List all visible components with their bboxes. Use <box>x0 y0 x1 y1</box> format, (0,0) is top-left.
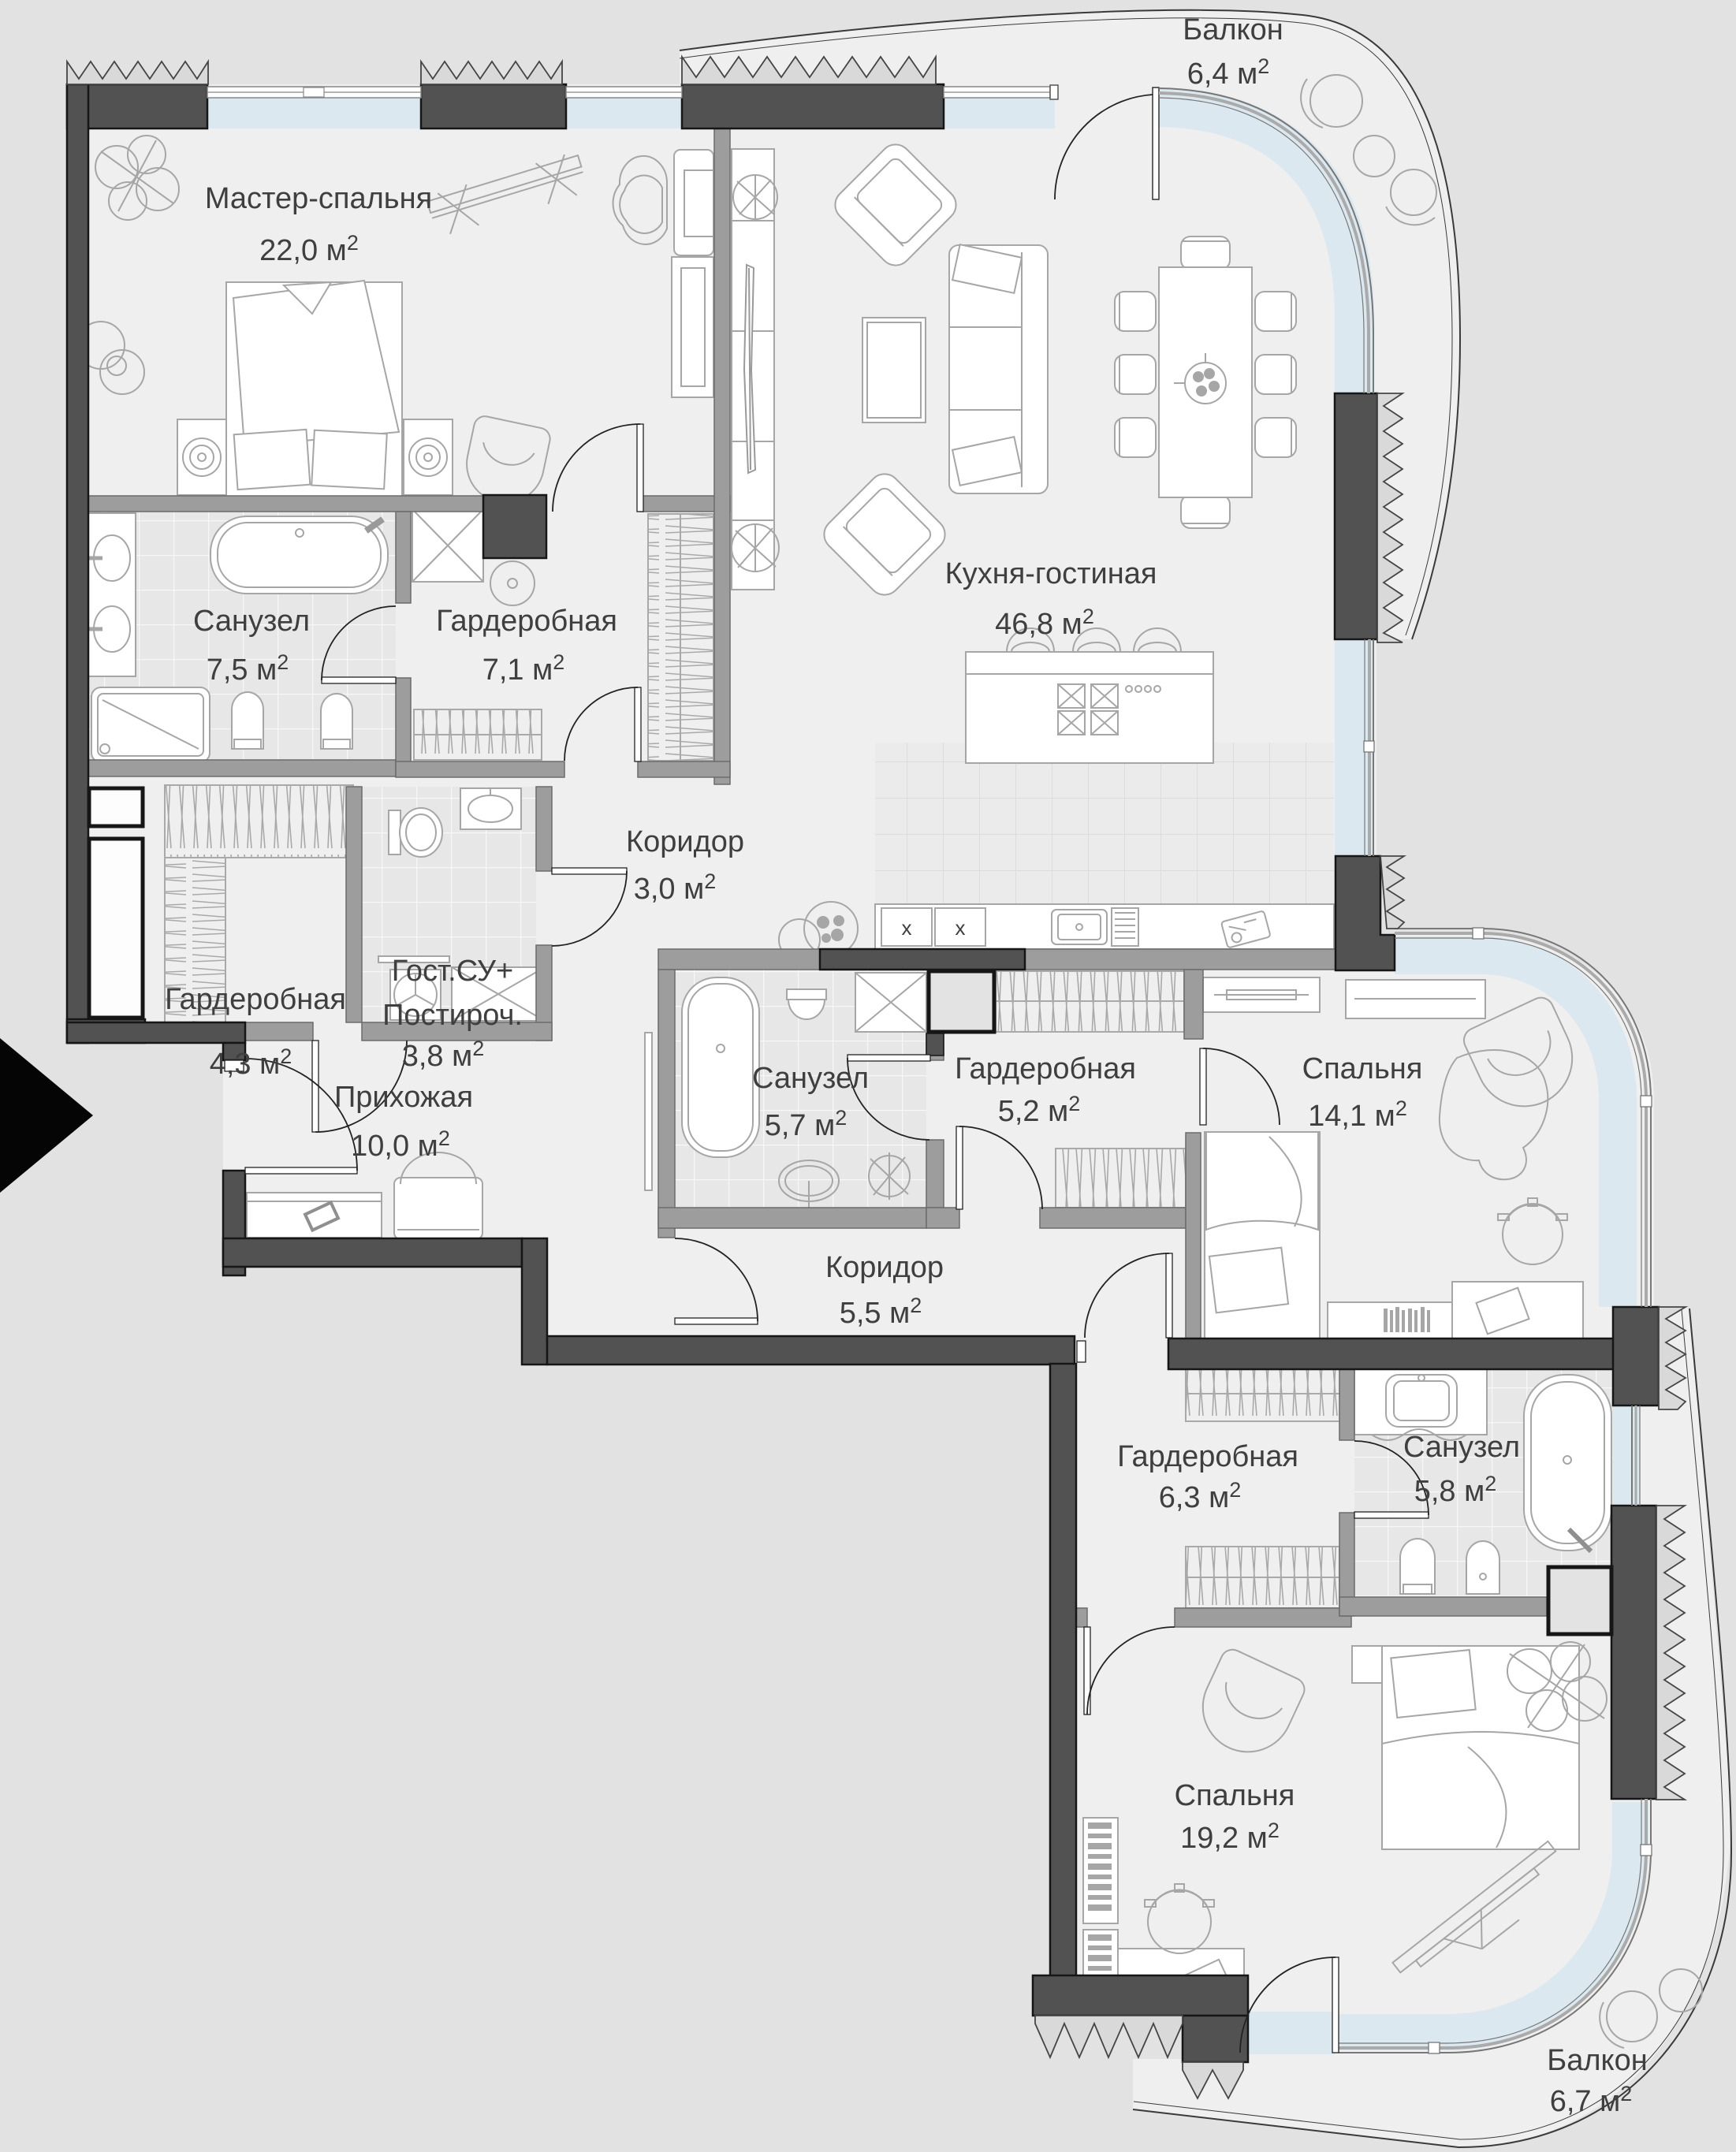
svg-text:Балкон: Балкон <box>1183 13 1283 47</box>
svg-text:Гардеробная: Гардеробная <box>436 605 617 638</box>
svg-text:5,5 м2: 5,5 м2 <box>840 1294 922 1330</box>
svg-text:x: x <box>956 916 966 940</box>
svg-text:10,0 м2: 10,0 м2 <box>351 1126 450 1163</box>
svg-text:Спальня: Спальня <box>1175 1779 1295 1812</box>
svg-text:3,0 м2: 3,0 м2 <box>634 869 717 906</box>
svg-text:Коридор: Коридор <box>825 1251 944 1284</box>
svg-text:46,8 м2: 46,8 м2 <box>995 605 1094 641</box>
svg-text:4,3 м2: 4,3 м2 <box>210 1044 292 1081</box>
svg-text:Гардеробная: Гардеробная <box>1117 1440 1298 1473</box>
svg-text:Коридор: Коридор <box>626 825 744 858</box>
svg-text:7,5 м2: 7,5 м2 <box>207 650 289 687</box>
svg-text:7,1 м2: 7,1 м2 <box>482 650 565 687</box>
svg-text:Санузел: Санузел <box>752 1062 869 1095</box>
svg-text:19,2 м2: 19,2 м2 <box>1180 1819 1280 1855</box>
svg-text:22,0 м2: 22,0 м2 <box>259 231 359 267</box>
svg-text:Гардеробная: Гардеробная <box>955 1052 1136 1085</box>
svg-text:5,2 м2: 5,2 м2 <box>998 1092 1081 1128</box>
svg-text:Гардеробная: Гардеробная <box>165 983 346 1016</box>
svg-text:6,7 м2: 6,7 м2 <box>1550 2082 1633 2118</box>
svg-text:x: x <box>902 916 912 940</box>
svg-text:5,8 м2: 5,8 м2 <box>1414 1472 1497 1508</box>
svg-text:Санузел: Санузел <box>193 605 310 638</box>
svg-text:Балкон: Балкон <box>1547 2044 1647 2077</box>
svg-text:Мастер-спальня: Мастер-спальня <box>205 182 432 215</box>
svg-text:Прихожая: Прихожая <box>334 1081 473 1114</box>
svg-text:5,7 м2: 5,7 м2 <box>765 1106 848 1142</box>
svg-text:3,8 м2: 3,8 м2 <box>402 1037 485 1073</box>
svg-text:6,3 м2: 6,3 м2 <box>1159 1478 1242 1514</box>
svg-text:Кухня-гостиная: Кухня-гостиная <box>945 557 1157 590</box>
svg-text:6,4 м2: 6,4 м2 <box>1187 54 1270 91</box>
svg-text:14,1 м2: 14,1 м2 <box>1308 1096 1407 1133</box>
svg-text:Постироч.: Постироч. <box>382 999 523 1032</box>
svg-text:Гост.СУ+: Гост.СУ+ <box>392 955 513 988</box>
svg-text:Санузел: Санузел <box>1403 1431 1520 1464</box>
svg-text:Спальня: Спальня <box>1302 1052 1423 1085</box>
